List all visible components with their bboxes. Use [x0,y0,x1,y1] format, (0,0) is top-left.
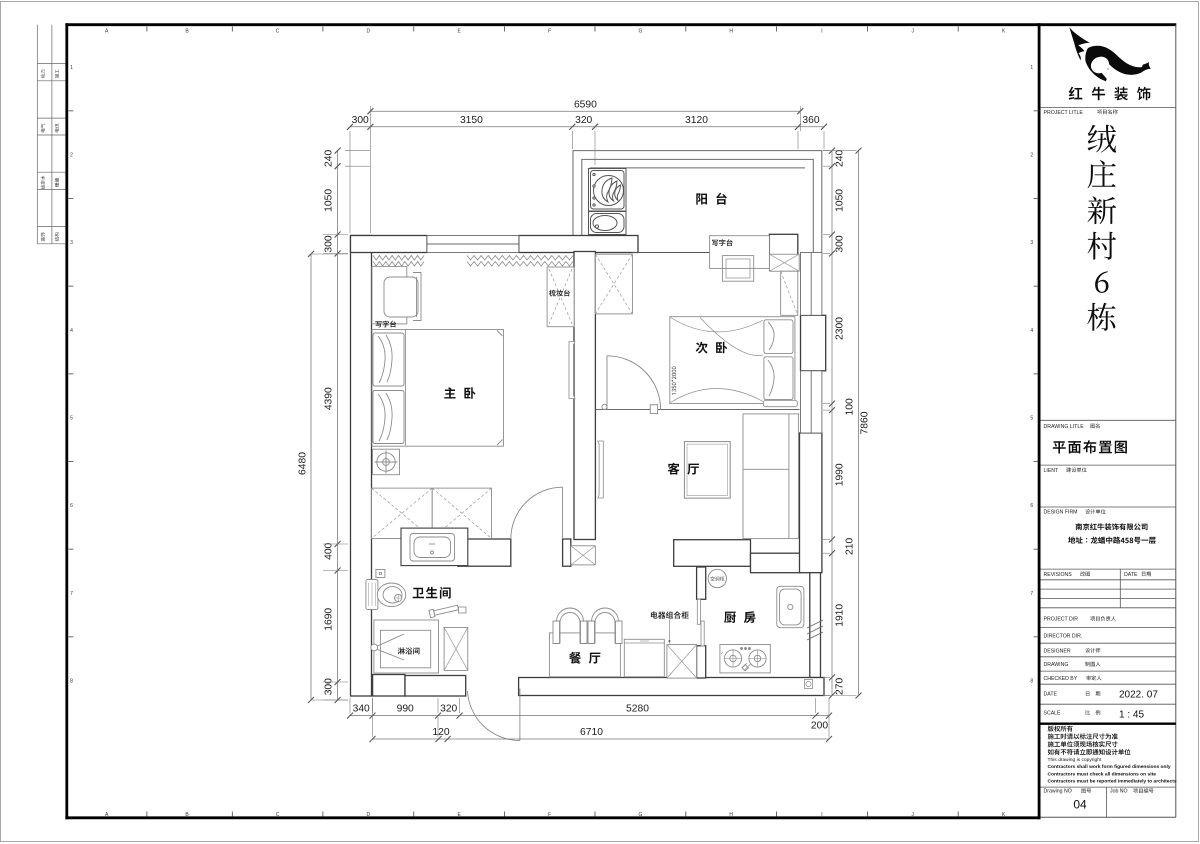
svg-text:Contractors must check all dim: Contractors must check all dimensions on… [1048,771,1157,777]
svg-text:DESIGNER: DESIGNER [1044,648,1071,654]
svg-text:320: 320 [575,115,592,126]
svg-text:300: 300 [324,235,335,252]
svg-text:04: 04 [1073,798,1087,812]
svg-text:6590: 6590 [574,100,597,111]
svg-text:1050: 1050 [835,189,846,212]
svg-text:400: 400 [324,542,335,559]
svg-text:DRAWING: DRAWING [1044,662,1069,668]
svg-text:C: C [276,812,280,818]
svg-text:200: 200 [811,721,828,732]
svg-text:5: 5 [1030,416,1033,422]
svg-text:7: 7 [1030,591,1033,597]
svg-text:F: F [548,29,551,35]
svg-text:1050: 1050 [324,189,335,212]
svg-text:G: G [638,812,642,818]
svg-text:DATE: DATE [1124,572,1138,578]
svg-text:I: I [821,29,822,35]
svg-text:8: 8 [70,679,73,685]
svg-text:LIENT: LIENT [1044,468,1060,474]
svg-text:F: F [548,812,551,818]
svg-text:7: 7 [70,591,73,597]
svg-text:Job NO: Job NO [1110,789,1128,795]
svg-text:7860: 7860 [860,411,871,434]
svg-text:120: 120 [432,727,449,738]
svg-text:H: H [729,812,733,818]
svg-text:2022. 07: 2022. 07 [1119,690,1158,701]
svg-text:Contractors must be reported i: Contractors must be reported immediately… [1048,779,1177,785]
svg-text:SCALE: SCALE [1044,711,1062,717]
svg-text:360: 360 [802,115,819,126]
svg-text:D: D [366,29,370,35]
svg-text:G: G [638,29,642,35]
svg-text:DIRECTOR DIR.: DIRECTOR DIR. [1044,634,1083,640]
svg-text:This drawing is copyright: This drawing is copyright [1048,757,1102,763]
svg-text:3150: 3150 [460,115,483,126]
svg-text:Contractors shall work form fi: Contractors shall work form figured dime… [1048,764,1171,770]
svg-text:4: 4 [1030,328,1033,334]
svg-text:1910: 1910 [835,604,846,627]
svg-text:1: 1 [70,65,73,71]
svg-text:C: C [276,29,280,35]
svg-text:2: 2 [70,153,73,159]
svg-text:6: 6 [1030,503,1033,509]
svg-text:3120: 3120 [685,115,708,126]
svg-text:270: 270 [835,678,846,695]
svg-text:REVISIONS: REVISIONS [1044,572,1073,578]
svg-text:DATE: DATE [1044,692,1058,698]
svg-text:990: 990 [397,704,414,715]
svg-text:2: 2 [1030,153,1033,159]
svg-text:5: 5 [70,416,73,422]
svg-text:5280: 5280 [626,704,649,715]
svg-text:3: 3 [70,240,73,246]
svg-text:6: 6 [70,503,73,509]
svg-text:DESIGN FIRM: DESIGN FIRM [1044,510,1078,516]
svg-text:I: I [821,812,822,818]
svg-text:4: 4 [70,328,73,334]
svg-text:320: 320 [440,704,457,715]
svg-text:210: 210 [845,538,856,555]
svg-text:240: 240 [835,150,846,167]
svg-text:1690: 1690 [324,608,335,631]
svg-text:300: 300 [352,115,369,126]
svg-text:PROJECT DIR: PROJECT DIR [1044,617,1079,623]
svg-text:PROJECT LITLE: PROJECT LITLE [1044,110,1084,116]
svg-text:100: 100 [845,398,856,415]
svg-text:300: 300 [324,678,335,695]
svg-text:DRAWING LITLE: DRAWING LITLE [1044,424,1085,430]
svg-text:1990: 1990 [835,463,846,486]
svg-text:2300: 2300 [835,317,846,340]
svg-text:3: 3 [1030,240,1033,246]
svg-text:340: 340 [353,704,370,715]
svg-text:240: 240 [324,150,335,167]
svg-text:300: 300 [835,235,846,252]
svg-text:8: 8 [1030,679,1033,685]
svg-text:D: D [366,812,370,818]
svg-text:4390: 4390 [324,387,335,410]
svg-text:1 : 45: 1 : 45 [1119,710,1144,721]
svg-text:1: 1 [1030,65,1033,71]
svg-text:H: H [729,29,733,35]
svg-text:Drawing NO: Drawing NO [1044,789,1072,795]
svg-text:6710: 6710 [580,727,603,738]
svg-text:6480: 6480 [298,452,309,475]
svg-text:CHECKED BY: CHECKED BY [1044,676,1078,682]
